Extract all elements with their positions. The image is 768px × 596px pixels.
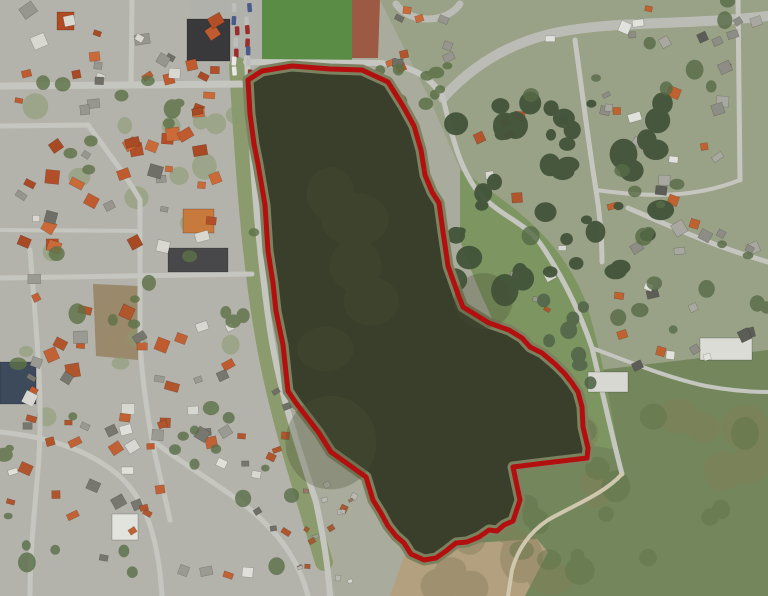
tree-blob — [731, 417, 759, 450]
tree-blob — [297, 327, 353, 371]
tree-blob — [523, 88, 539, 102]
tree-blob — [261, 465, 269, 472]
football-pitch — [262, 0, 352, 62]
tree-blob — [49, 246, 65, 261]
house — [511, 192, 522, 202]
car — [232, 66, 237, 75]
house — [119, 413, 131, 422]
house — [76, 343, 85, 349]
road-town-h3 — [0, 230, 140, 231]
tree-blob — [211, 444, 222, 454]
car — [234, 49, 239, 58]
tree-blob — [182, 250, 197, 262]
house — [121, 467, 133, 474]
tree-blob — [511, 267, 534, 291]
tree-blob — [419, 98, 434, 110]
tree-blob — [19, 346, 33, 357]
tree-blob — [307, 167, 355, 220]
tree-blob — [565, 556, 595, 584]
house — [156, 239, 171, 253]
house — [23, 423, 32, 430]
tree-blob — [118, 117, 133, 134]
house — [187, 406, 198, 415]
car — [247, 3, 252, 12]
tree-blob — [206, 113, 227, 134]
tree-blob — [598, 506, 613, 522]
house — [241, 461, 249, 467]
house — [45, 169, 60, 184]
tree-blob — [635, 228, 652, 246]
tree-blob — [5, 445, 14, 452]
house — [613, 107, 621, 114]
tree-blob — [543, 334, 555, 347]
tree-blob — [628, 186, 641, 198]
house — [645, 5, 653, 12]
car — [235, 26, 240, 35]
tree-blob — [127, 566, 138, 578]
tree-blob — [540, 154, 561, 177]
tree-blob — [578, 301, 589, 313]
tree-blob — [614, 164, 630, 177]
house — [251, 470, 261, 479]
tree-blob — [456, 246, 482, 270]
house — [160, 206, 168, 212]
tree-blob — [68, 412, 77, 420]
school-block — [168, 248, 228, 272]
house — [403, 6, 412, 14]
tree-blob — [178, 432, 189, 441]
tree-blob — [222, 335, 240, 355]
car — [232, 3, 237, 12]
house — [210, 66, 219, 74]
tree-blob — [611, 260, 631, 275]
tree-blob — [493, 115, 512, 131]
tree-blob — [717, 240, 727, 248]
tree-blob — [543, 266, 558, 277]
house — [674, 247, 685, 255]
tree-blob — [22, 540, 31, 551]
car — [231, 16, 236, 25]
tree-blob — [750, 295, 765, 311]
tree-blob — [569, 257, 584, 270]
house — [558, 246, 566, 251]
tree-blob — [535, 202, 557, 222]
sports-hall — [187, 19, 230, 61]
house — [121, 404, 134, 415]
road-town-v1 — [131, 0, 132, 84]
tree-blob — [560, 321, 577, 339]
tree-blob — [36, 75, 50, 90]
car — [231, 56, 236, 65]
tree-blob — [546, 129, 556, 141]
house — [72, 70, 82, 79]
tree-blob — [585, 376, 597, 389]
tree-blob — [704, 451, 744, 491]
tree-blob — [686, 60, 704, 80]
house — [335, 575, 341, 581]
tree-blob — [64, 148, 78, 159]
map-viewport[interactable] — [0, 0, 768, 596]
tree-blob — [4, 513, 13, 520]
house — [632, 19, 644, 27]
tree-blob — [203, 401, 219, 415]
tree-blob — [226, 106, 246, 124]
house — [80, 105, 90, 116]
running-track — [352, 0, 380, 58]
car — [233, 38, 238, 47]
tree-blob — [559, 137, 575, 151]
house — [659, 175, 670, 185]
tree-blob — [631, 303, 648, 317]
car — [244, 17, 249, 26]
house — [137, 343, 148, 350]
tree-blob — [173, 99, 184, 108]
house — [185, 59, 198, 72]
house — [669, 156, 679, 163]
tree-blob — [141, 75, 155, 86]
house — [242, 567, 253, 578]
tree-blob — [235, 490, 251, 507]
tree-blob — [444, 112, 468, 135]
house — [192, 144, 208, 157]
tree-blob — [393, 64, 404, 76]
house — [614, 292, 624, 300]
car — [245, 38, 250, 47]
house — [154, 375, 165, 383]
tree-blob — [119, 545, 130, 558]
house — [303, 489, 309, 494]
tree-blob — [522, 226, 540, 245]
tree-blob — [660, 81, 673, 95]
tree-blob — [647, 276, 663, 290]
house — [147, 443, 155, 449]
house — [89, 52, 100, 62]
house — [206, 216, 217, 225]
house — [341, 509, 346, 514]
house — [545, 36, 555, 42]
house — [73, 331, 87, 344]
road-town-h2 — [0, 125, 88, 126]
tree-blob — [237, 308, 250, 323]
house — [628, 32, 636, 39]
house — [33, 215, 40, 221]
house — [99, 554, 108, 561]
tree-blob — [717, 11, 732, 29]
tree-blob — [581, 215, 592, 224]
tree-blob — [55, 77, 71, 91]
tree-blob — [706, 80, 717, 92]
house — [65, 420, 73, 425]
tree-blob — [9, 358, 26, 370]
tree-blob — [698, 280, 714, 298]
house — [655, 186, 667, 196]
house — [304, 564, 310, 569]
tree-blob — [108, 314, 118, 326]
house — [666, 351, 675, 360]
tree-blob — [223, 412, 235, 424]
tree-blob — [613, 202, 623, 210]
tree-blob — [743, 252, 754, 260]
tree-blob — [268, 557, 284, 575]
tree-blob — [23, 93, 49, 119]
tree-blob — [553, 109, 575, 128]
tree-blob — [669, 325, 678, 334]
car — [245, 25, 250, 34]
house — [63, 15, 76, 27]
tree-blob — [474, 183, 492, 203]
house — [28, 274, 41, 283]
tree-blob — [420, 71, 433, 81]
tree-blob — [537, 549, 561, 569]
tree-blob — [128, 319, 140, 328]
tree-blob — [571, 347, 586, 363]
tree-blob — [115, 90, 129, 102]
tree-blob — [560, 233, 573, 245]
tree-blob — [169, 444, 181, 455]
tree-blob — [656, 201, 666, 208]
tree-blob — [435, 85, 445, 93]
tree-blob — [50, 545, 60, 555]
house — [237, 433, 245, 439]
tree-blob — [330, 239, 382, 291]
tree-blob — [18, 552, 36, 572]
house — [151, 429, 163, 441]
road-right-v2 — [738, 0, 740, 180]
tree-blob — [249, 228, 260, 236]
tree-blob — [284, 488, 299, 503]
tree-blob — [701, 508, 719, 525]
house — [270, 526, 277, 532]
house — [155, 485, 165, 495]
house — [168, 68, 180, 79]
tree-blob — [537, 294, 550, 308]
tree-blob — [84, 135, 98, 146]
tree-blob — [491, 98, 509, 114]
tree-blob — [442, 62, 452, 69]
house — [165, 166, 173, 173]
tree-blob — [112, 357, 130, 370]
tree-blob — [190, 426, 199, 435]
house — [700, 142, 708, 150]
tree-blob — [670, 179, 685, 190]
house — [605, 104, 613, 112]
car — [246, 57, 251, 66]
house — [94, 62, 103, 70]
tree-blob — [189, 459, 199, 470]
tree-blob — [456, 227, 466, 234]
tree-blob — [130, 295, 140, 302]
house — [52, 491, 61, 499]
house — [95, 77, 104, 85]
tree-blob — [637, 129, 657, 151]
tree-blob — [142, 275, 156, 291]
tree-blob — [586, 100, 596, 108]
tree-blob — [69, 303, 87, 324]
tree-blob — [652, 92, 673, 114]
tree-blob — [82, 165, 95, 175]
house — [197, 181, 205, 188]
house — [399, 50, 409, 59]
car — [246, 46, 251, 55]
tree-blob — [163, 118, 175, 128]
tree-blob — [220, 306, 231, 319]
tree-blob — [591, 74, 601, 81]
tree-blob — [644, 37, 656, 50]
aerial-satellite-image — [0, 0, 768, 596]
tree-blob — [640, 404, 667, 430]
tree-blob — [586, 221, 606, 243]
tree-blob — [610, 309, 626, 326]
house — [203, 92, 215, 99]
tree-blob — [639, 549, 657, 567]
